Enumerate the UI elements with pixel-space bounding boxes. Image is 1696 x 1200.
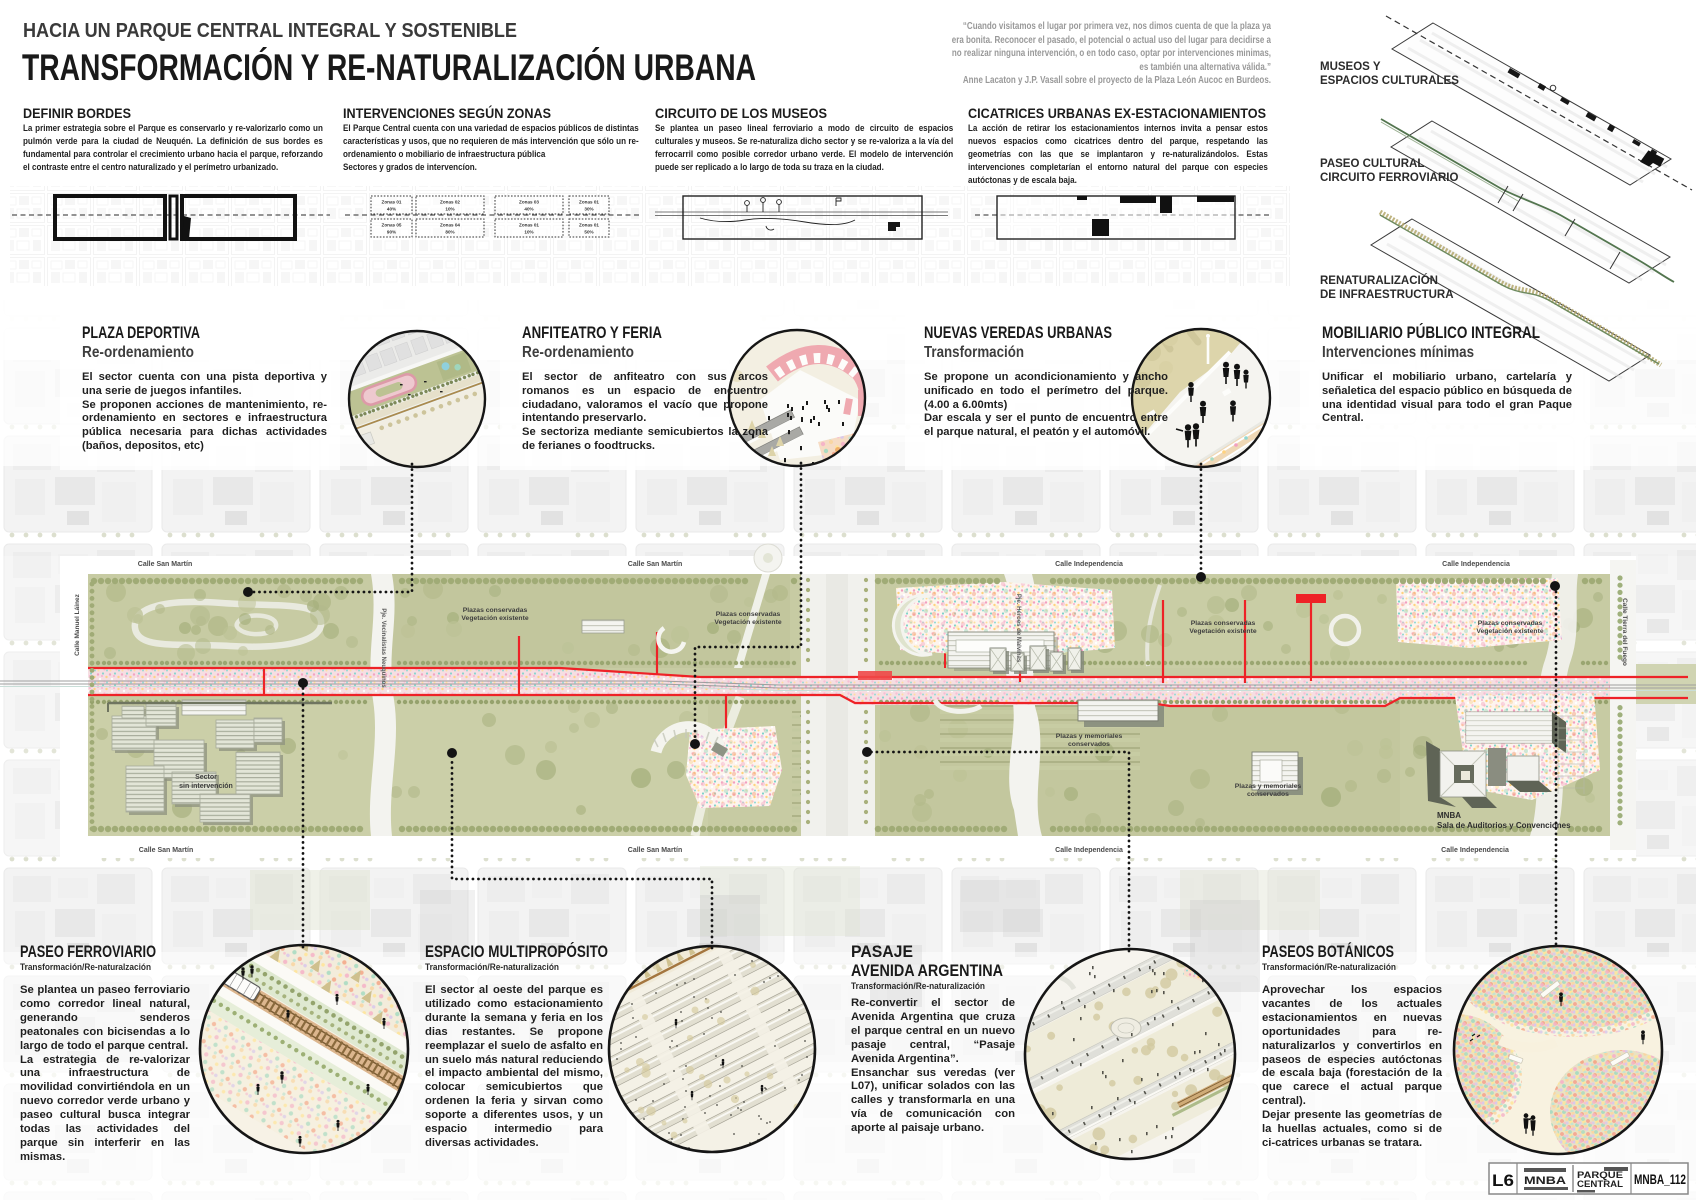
- svg-text:Re-ordenamiento: Re-ordenamiento: [82, 344, 194, 361]
- svg-text:Zonas 01: Zonas 01: [519, 223, 539, 228]
- svg-text:Zonas 05: Zonas 05: [382, 223, 402, 228]
- svg-text:Zonas 01: Zonas 01: [579, 223, 599, 228]
- svg-text:90%: 90%: [387, 230, 396, 235]
- svg-text:Transformación/Re-naturalizaci: Transformación/Re-naturalización: [425, 962, 559, 973]
- svg-text:Plazas conservadasVegetación e: Plazas conservadasVegetación existente: [714, 611, 781, 626]
- svg-text:Calle Independencia: Calle Independencia: [1442, 561, 1510, 568]
- svg-text:NUEVAS VEREDAS URBANAS: NUEVAS VEREDAS URBANAS: [924, 324, 1112, 342]
- svg-text:PLAZA DEPORTIVA: PLAZA DEPORTIVA: [82, 324, 200, 342]
- svg-text:PASEOS BOTÁNICOS: PASEOS BOTÁNICOS: [1262, 942, 1394, 961]
- svg-text:PASEO FERROVIARIO: PASEO FERROVIARIO: [20, 943, 156, 961]
- svg-text:CENTRAL: CENTRAL: [1577, 1179, 1624, 1189]
- svg-text:Plazas conservadasVegetación e: Plazas conservadasVegetación existente: [1189, 620, 1256, 635]
- svg-text:Intervenciones mínimas: Intervenciones mínimas: [1322, 344, 1474, 361]
- svg-text:Pje. Vecinalistas Neuquinos: Pje. Vecinalistas Neuquinos: [380, 608, 386, 688]
- svg-text:ANFITEATRO Y FERIA: ANFITEATRO Y FERIA: [522, 324, 662, 342]
- svg-text:80%: 80%: [445, 230, 454, 235]
- svg-text:Calle San Martín: Calle San Martín: [628, 847, 682, 854]
- svg-text:Plazas conservadasVegetación e: Plazas conservadasVegetación existente: [461, 607, 528, 622]
- svg-text:Calle Independencia: Calle Independencia: [1441, 847, 1509, 854]
- svg-text:CIRCUITO DE LOS MUSEOS: CIRCUITO DE LOS MUSEOS: [655, 106, 827, 121]
- svg-text:Transformación/Re-naturalzació: Transformación/Re-naturalzación: [20, 962, 151, 973]
- svg-text:Zonas 04: Zonas 04: [440, 223, 460, 228]
- svg-text:Re-ordenamiento: Re-ordenamiento: [522, 344, 634, 361]
- svg-text:Calle San Martín: Calle San Martín: [138, 561, 192, 568]
- svg-text:DEFINIR BORDES: DEFINIR BORDES: [23, 106, 131, 121]
- svg-text:HACIA UN PARQUE CENTRAL INTEGR: HACIA UN PARQUE CENTRAL INTEGRAL Y SOSTE…: [23, 20, 517, 42]
- svg-text:Calle Manuel Láinez: Calle Manuel Láinez: [74, 593, 81, 656]
- svg-text:Calle San Martín: Calle San Martín: [628, 561, 682, 568]
- svg-text:40%: 40%: [387, 207, 396, 212]
- svg-text:Zonas 01: Zonas 01: [382, 200, 402, 205]
- svg-text:MNBA: MNBA: [1524, 1175, 1566, 1187]
- svg-text:PASAJE: PASAJE: [851, 943, 913, 961]
- svg-text:TRANSFORMACIÓN Y RE-NATURALIZA: TRANSFORMACIÓN Y RE-NATURALIZACIÓN URBAN…: [22, 46, 756, 88]
- svg-text:10%: 10%: [445, 207, 454, 212]
- svg-text:30%: 30%: [584, 207, 593, 212]
- svg-text:40%: 40%: [524, 207, 533, 212]
- svg-text:50%: 50%: [584, 230, 593, 235]
- svg-text:Zonas 03: Zonas 03: [519, 200, 539, 205]
- svg-text:Transformación: Transformación: [924, 344, 1024, 361]
- svg-text:RENATURALIZACIÓNDE INFRAESTRUC: RENATURALIZACIÓNDE INFRAESTRUCTURA: [1320, 274, 1454, 301]
- svg-text:CICATRICES URBANAS EX-ESTACION: CICATRICES URBANAS EX-ESTACIONAMIENTOS: [968, 106, 1266, 121]
- svg-text:Calle Independencia: Calle Independencia: [1055, 561, 1123, 568]
- svg-text:MOBILIARIO PÚBLICO INTEGRAL: MOBILIARIO PÚBLICO INTEGRAL: [1322, 323, 1540, 342]
- svg-text:Zonas 02: Zonas 02: [440, 200, 460, 205]
- svg-text:10%: 10%: [524, 230, 533, 235]
- svg-text:Calle San Martín: Calle San Martín: [139, 847, 193, 854]
- svg-text:AVENIDA ARGENTINA: AVENIDA ARGENTINA: [851, 962, 1003, 980]
- svg-text:Pje. Héroes de Malvinas: Pje. Héroes de Malvinas: [1015, 594, 1021, 663]
- svg-text:MNBA_112: MNBA_112: [1634, 1172, 1686, 1187]
- svg-text:Zonas 01: Zonas 01: [579, 200, 599, 205]
- svg-text:ESPACIO MULTIPROPÓSITO: ESPACIO MULTIPROPÓSITO: [425, 942, 608, 961]
- svg-text:Transformación/Re-naturalizaci: Transformación/Re-naturalización: [1262, 962, 1396, 973]
- svg-text:Calle Independencia: Calle Independencia: [1055, 847, 1123, 854]
- svg-text:INTERVENCIONES SEGÚN ZONAS: INTERVENCIONES SEGÚN ZONAS: [343, 106, 551, 121]
- svg-text:Transformación/Re-naturalizaci: Transformación/Re-naturalización: [851, 981, 985, 992]
- svg-text:L6: L6: [1492, 1171, 1514, 1190]
- svg-text:Calle Tierra del Fuego: Calle Tierra del Fuego: [1621, 598, 1628, 666]
- svg-text:Plazas conservadasVegetación e: Plazas conservadasVegetación existente: [1476, 620, 1543, 635]
